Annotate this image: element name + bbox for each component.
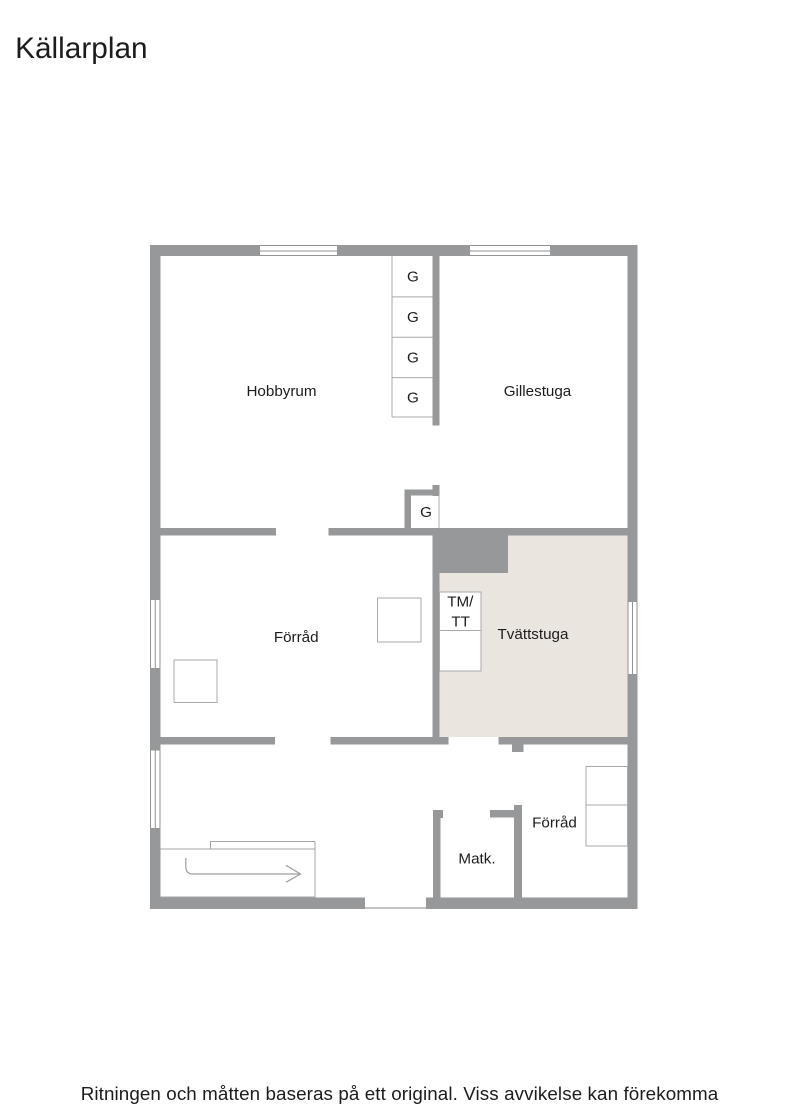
- svg-text:G: G: [407, 350, 419, 367]
- svg-text:TM/: TM/: [447, 594, 474, 611]
- svg-text:G: G: [407, 390, 419, 407]
- svg-text:G: G: [407, 309, 419, 326]
- svg-text:Förråd: Förråd: [532, 815, 577, 832]
- svg-text:TT: TT: [451, 614, 470, 631]
- svg-text:Gillestuga: Gillestuga: [504, 383, 572, 400]
- svg-text:Källarplan: Källarplan: [15, 32, 148, 65]
- svg-text:G: G: [420, 504, 432, 521]
- svg-text:Ritningen och måtten baseras p: Ritningen och måtten baseras på ett orig…: [81, 1083, 719, 1104]
- svg-text:Tvättstuga: Tvättstuga: [498, 626, 569, 643]
- svg-text:Matk.: Matk.: [458, 850, 495, 867]
- svg-text:G: G: [407, 269, 419, 286]
- svg-text:Förråd: Förråd: [274, 629, 319, 646]
- svg-text:Hobbyrum: Hobbyrum: [246, 383, 316, 400]
